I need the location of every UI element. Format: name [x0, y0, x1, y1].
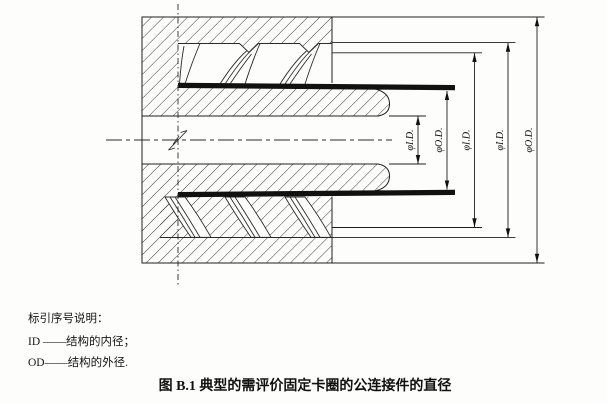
standard-figure-page: φI.D. φO.D. φI.D. φI.D. φO.D. 标引序号说明： ID… — [0, 0, 607, 404]
dimension-tube-od — [445, 91, 449, 190]
legend-item-id: ID ——结构的内径； — [28, 334, 135, 348]
tube-wall-top-section — [178, 88, 390, 116]
dim-label-tube-id: φI.D. — [405, 129, 416, 150]
legend-item-od: OD——结构的外径. — [28, 355, 128, 369]
thread-wedge — [300, 43, 319, 53]
dimension-collar-od — [535, 17, 539, 263]
legend: 标引序号说明： ID ——结构的内径； OD——结构的外径. — [28, 311, 135, 369]
dimension-collar-id-root — [506, 43, 510, 238]
thread-wedge — [240, 43, 259, 53]
legend-title: 标引序号说明： — [28, 311, 109, 325]
dim-label-collar-od: φO.D. — [524, 128, 535, 153]
dim-label-tube-od: φO.D. — [434, 128, 445, 153]
dim-label-collar-id-root: φI.D. — [495, 129, 506, 150]
figure-caption: 图 B.1 典型的需评价固定卡圈的公连接件的直径 — [159, 377, 452, 394]
thread-profile-top — [178, 43, 332, 84]
dim-label-collar-id-crest: φI.D. — [462, 129, 473, 150]
dimension-collar-id-crest — [472, 53, 476, 227]
dimension-labels: φI.D. φO.D. φI.D. φI.D. φO.D. — [405, 128, 535, 153]
dimension-tube-id — [416, 116, 420, 164]
tube-wall-bottom-section — [178, 164, 390, 192]
figure-b1-technical-drawing: φI.D. φO.D. φI.D. φI.D. φO.D. 标引序号说明： ID… — [0, 0, 607, 404]
